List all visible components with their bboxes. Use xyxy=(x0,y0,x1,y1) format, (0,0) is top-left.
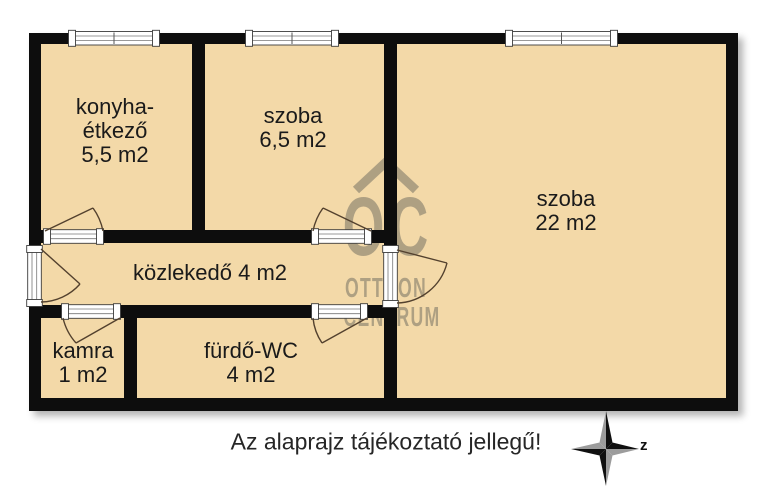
room-label-line: szoba xyxy=(535,187,596,211)
window-szoba-nagy xyxy=(506,30,618,46)
door-threshold-kamra xyxy=(62,304,121,320)
room-label-furdo-wc: fürdő-WC 4 m2 xyxy=(204,339,298,387)
wall-outer-left xyxy=(29,33,41,411)
room-label-line: konyha- xyxy=(76,95,154,119)
room-label-area: 5,5 m2 xyxy=(76,143,154,167)
wall-kamra-furdo xyxy=(124,307,137,398)
room-label-area: 4 m2 xyxy=(204,363,298,387)
room-label-line: fürdő-WC xyxy=(204,339,298,363)
room-label-area: 22 m2 xyxy=(535,211,596,235)
door-threshold-konyha xyxy=(44,229,104,245)
floorplan-canvas: OC OTTHON CENTRUM xyxy=(0,0,773,486)
door-threshold-furdo xyxy=(312,304,368,320)
compass-north-label: z xyxy=(640,437,648,454)
room-label-area: 1 m2 xyxy=(52,363,113,387)
room-label-area: 6,5 m2 xyxy=(259,128,326,152)
room-label-szoba-kis: szoba 6,5 m2 xyxy=(259,104,326,152)
room-label-kozlekedo: közlekedő 4 m2 xyxy=(133,261,287,285)
floorplan-svg: OC OTTHON CENTRUM xyxy=(0,0,773,486)
room-label-line: közlekedő 4 m2 xyxy=(133,261,287,285)
wall-outer-bottom xyxy=(29,398,738,411)
disclaimer-text: Az alaprajz tájékoztató jellegű! xyxy=(231,429,542,456)
door-threshold-szoba-kis xyxy=(312,229,372,245)
door-threshold-szoba-nagy xyxy=(383,246,399,308)
door-threshold-entry xyxy=(27,246,43,307)
wall-outer-right xyxy=(726,33,738,411)
room-label-szoba-nagy: szoba 22 m2 xyxy=(535,187,596,235)
window-konyha xyxy=(69,30,160,46)
window-szoba-kis xyxy=(246,30,339,46)
room-label-konyha-etkezo: konyha- étkező 5,5 m2 xyxy=(76,95,154,167)
wall-szoba-nagy-left xyxy=(384,44,397,398)
room-label-line: étkező xyxy=(76,119,154,143)
room-label-line: kamra xyxy=(52,339,113,363)
room-label-line: szoba xyxy=(259,104,326,128)
compass-icon: z xyxy=(571,411,648,486)
wall-konyha-szoba xyxy=(192,44,205,232)
room-label-kamra: kamra 1 m2 xyxy=(52,339,113,387)
